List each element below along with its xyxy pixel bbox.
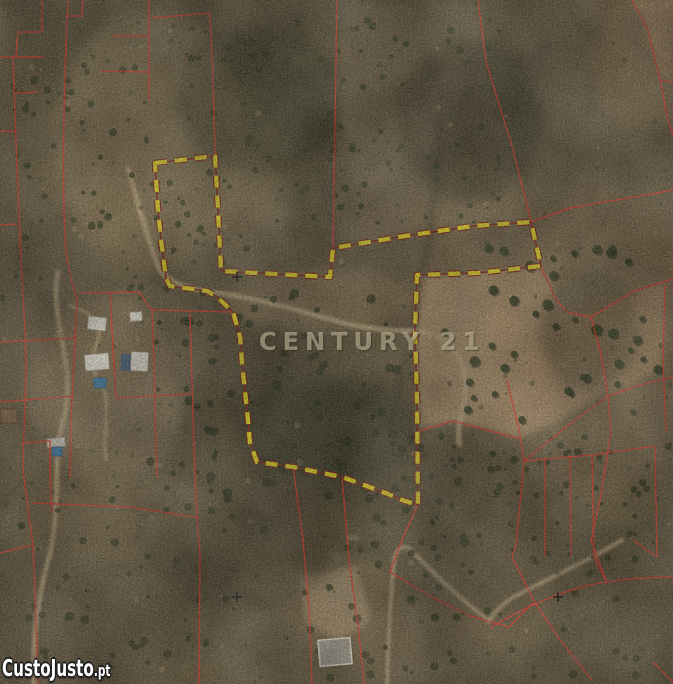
house-building: [87, 316, 106, 331]
swimming-pool: [52, 447, 62, 456]
house-building: [130, 312, 143, 322]
century21-watermark: CENTURY 21: [259, 327, 492, 356]
custojusto-watermark: CustoJusto.pt: [2, 658, 110, 681]
house-building: [131, 352, 149, 372]
custojusto-watermark-suffix: .pt: [94, 661, 111, 680]
swimming-pool: [94, 378, 106, 388]
house-building: [318, 638, 352, 667]
house-building: [1, 409, 17, 423]
house-building: [84, 353, 109, 371]
custojusto-watermark-text: CustoJusto: [2, 656, 94, 682]
aerial-property-photo: CENTURY 21 CustoJusto.pt: [0, 0, 673, 684]
